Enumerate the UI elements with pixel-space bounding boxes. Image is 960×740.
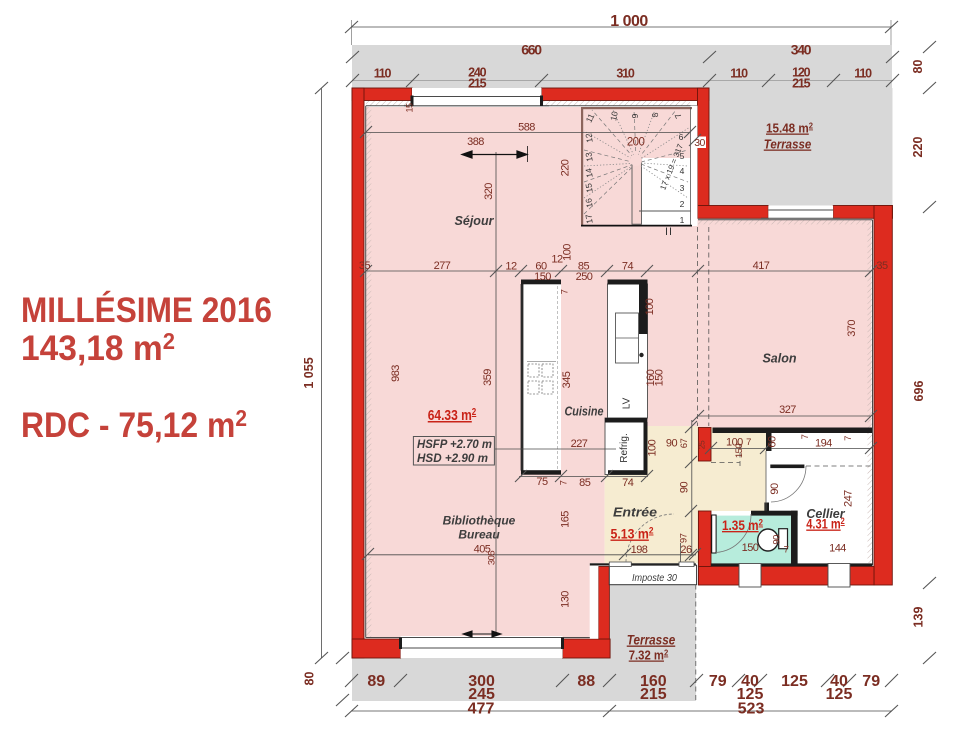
svg-text:247: 247 xyxy=(843,490,855,507)
svg-text:983: 983 xyxy=(390,365,402,382)
svg-text:80: 80 xyxy=(911,60,925,74)
svg-text:100: 100 xyxy=(562,244,574,261)
svg-text:74: 74 xyxy=(622,261,634,273)
svg-text:194: 194 xyxy=(815,438,832,450)
svg-text:696: 696 xyxy=(912,381,926,402)
svg-text:60: 60 xyxy=(767,436,779,448)
svg-text:90: 90 xyxy=(772,535,783,545)
svg-text:165: 165 xyxy=(560,511,572,528)
svg-text:Bureau: Bureau xyxy=(458,528,500,542)
svg-text:35: 35 xyxy=(359,260,371,272)
svg-text:25: 25 xyxy=(697,440,707,449)
svg-text:14: 14 xyxy=(583,167,595,178)
svg-text:110: 110 xyxy=(854,67,872,81)
svg-text:359: 359 xyxy=(482,369,494,386)
svg-text:345: 345 xyxy=(561,371,573,388)
svg-text:7: 7 xyxy=(784,545,789,556)
svg-text:HSD +2.90 m: HSD +2.90 m xyxy=(417,451,488,465)
svg-text:125: 125 xyxy=(781,673,808,690)
svg-text:35: 35 xyxy=(876,260,888,272)
svg-text:15.48 m2: 15.48 m2 xyxy=(766,121,813,136)
svg-text:150: 150 xyxy=(534,271,551,283)
svg-text:215: 215 xyxy=(640,686,667,703)
svg-text:64.33 m2: 64.33 m2 xyxy=(428,407,477,424)
svg-text:97: 97 xyxy=(679,533,690,543)
svg-text:130: 130 xyxy=(560,591,572,608)
svg-text:327: 327 xyxy=(779,404,796,416)
svg-text:Séjour: Séjour xyxy=(455,214,495,228)
svg-text:150: 150 xyxy=(654,369,666,386)
svg-text:215: 215 xyxy=(468,77,487,91)
svg-text:Imposte 30: Imposte 30 xyxy=(632,572,677,584)
svg-text:80: 80 xyxy=(303,672,317,686)
svg-text:100: 100 xyxy=(647,439,659,456)
svg-text:660: 660 xyxy=(521,42,542,58)
svg-text:227: 227 xyxy=(571,438,588,450)
svg-text:88: 88 xyxy=(577,673,595,690)
svg-text:30: 30 xyxy=(694,137,705,149)
svg-text:150: 150 xyxy=(734,444,745,458)
svg-text:MILLÉSIME 2016: MILLÉSIME 2016 xyxy=(21,290,272,330)
svg-text:477: 477 xyxy=(468,701,495,718)
svg-text:67: 67 xyxy=(679,439,690,449)
svg-text:150: 150 xyxy=(742,542,759,554)
svg-text:17: 17 xyxy=(583,213,595,224)
svg-text:16: 16 xyxy=(583,197,595,208)
svg-text:9: 9 xyxy=(630,113,640,118)
svg-text:4: 4 xyxy=(680,166,685,176)
svg-text:139: 139 xyxy=(912,607,926,628)
svg-text:220: 220 xyxy=(560,159,572,176)
svg-text:85: 85 xyxy=(579,477,591,489)
svg-text:7: 7 xyxy=(560,289,571,294)
svg-text:110: 110 xyxy=(374,67,392,81)
svg-text:Entrée: Entrée xyxy=(613,505,657,520)
svg-text:143,18 m2: 143,18 m2 xyxy=(21,328,175,368)
svg-text:277: 277 xyxy=(434,260,451,272)
svg-text:7: 7 xyxy=(559,480,570,485)
svg-text:523: 523 xyxy=(738,701,765,718)
svg-text:13: 13 xyxy=(583,151,595,162)
svg-text:12: 12 xyxy=(583,132,595,143)
svg-text:388: 388 xyxy=(467,136,484,148)
svg-text:215: 215 xyxy=(792,77,811,91)
svg-text:15: 15 xyxy=(583,182,595,193)
svg-text:370: 370 xyxy=(846,320,858,337)
svg-text:4.31 m2: 4.31 m2 xyxy=(806,516,845,532)
svg-text:LV: LV xyxy=(622,397,633,409)
svg-text:74: 74 xyxy=(622,477,634,489)
svg-text:Salon: Salon xyxy=(762,352,796,366)
svg-text:7: 7 xyxy=(843,436,854,441)
svg-text:7: 7 xyxy=(800,434,811,439)
svg-text:5.13 m2: 5.13 m2 xyxy=(611,526,654,542)
svg-text:HSFP +2.70 m: HSFP +2.70 m xyxy=(417,437,492,451)
svg-text:310: 310 xyxy=(616,67,635,81)
svg-text:1 055: 1 055 xyxy=(302,357,316,388)
svg-text:1: 1 xyxy=(680,215,685,225)
svg-text:12: 12 xyxy=(505,261,517,273)
svg-text:89: 89 xyxy=(367,673,385,690)
svg-text:125: 125 xyxy=(826,686,853,703)
svg-text:200: 200 xyxy=(627,137,645,149)
svg-text:26: 26 xyxy=(680,544,692,556)
svg-text:7.32 m2: 7.32 m2 xyxy=(629,648,669,663)
svg-text:144: 144 xyxy=(829,543,846,555)
svg-text:588: 588 xyxy=(518,122,535,134)
svg-text:Cuisine: Cuisine xyxy=(565,405,604,419)
svg-text:Terrasse: Terrasse xyxy=(627,633,676,648)
svg-text:305: 305 xyxy=(487,551,498,565)
svg-text:90: 90 xyxy=(666,438,678,450)
svg-text:Terrasse: Terrasse xyxy=(764,137,812,152)
svg-text:100: 100 xyxy=(644,298,656,315)
svg-text:1 000: 1 000 xyxy=(610,13,648,30)
svg-text:79: 79 xyxy=(862,673,880,690)
svg-text:7: 7 xyxy=(746,437,751,448)
svg-text:417: 417 xyxy=(753,260,770,272)
svg-text:340: 340 xyxy=(791,42,812,58)
svg-text:2: 2 xyxy=(680,199,685,209)
svg-text:1.35 m2: 1.35 m2 xyxy=(722,518,763,534)
svg-text:250: 250 xyxy=(576,271,593,283)
svg-text:3: 3 xyxy=(680,183,685,193)
svg-text:79: 79 xyxy=(709,673,727,690)
svg-text:220: 220 xyxy=(911,137,925,158)
svg-text:320: 320 xyxy=(483,183,495,200)
svg-text:15: 15 xyxy=(405,103,415,112)
svg-text:6: 6 xyxy=(679,132,684,142)
svg-text:90: 90 xyxy=(679,482,691,494)
svg-text:RDC - 75,12 m2: RDC - 75,12 m2 xyxy=(21,405,247,445)
svg-text:90: 90 xyxy=(769,483,781,495)
svg-text:75: 75 xyxy=(536,476,548,488)
svg-text:110: 110 xyxy=(730,67,748,81)
svg-text:Refrig.: Refrig. xyxy=(619,433,630,462)
svg-text:198: 198 xyxy=(631,544,648,556)
svg-text:Bibliothèque: Bibliothèque xyxy=(443,514,516,528)
